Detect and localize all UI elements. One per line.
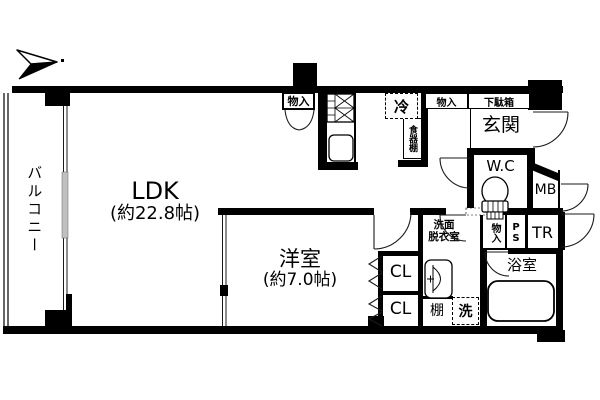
western-room-name: 洋室 <box>279 248 321 271</box>
storage-kitchen-label: 物入 <box>288 93 310 109</box>
storage-kitchen-box: 物入 <box>282 92 315 110</box>
cupboard-label: 食器棚 <box>406 125 419 152</box>
refrigerator-box: 冷 <box>385 93 418 119</box>
balcony-label: バルコニー <box>22 148 46 272</box>
shoe-cabinet-box: 下駄箱 <box>468 93 530 109</box>
western-room-window <box>220 215 228 326</box>
wall-westroom-top <box>218 208 374 215</box>
shelf-label: 棚 <box>421 299 453 325</box>
storage-hall-box: 物入 <box>425 93 468 109</box>
washroom-label-line2: 脱衣室 <box>428 232 460 244</box>
ldk-label: LDK (約22.8帖) <box>70 174 240 228</box>
wall-top-right-pillar <box>528 80 562 110</box>
wall-kitchen-bottom <box>398 160 428 167</box>
wall-balcony-divider-bar <box>66 294 72 326</box>
western-room-size: (約7.0帖) <box>263 271 337 290</box>
meter-box-door-arc <box>561 184 588 211</box>
cupboard-box: 食器棚 <box>403 118 422 159</box>
wall-balcony-divider-top <box>45 86 70 106</box>
western-room-door-arc <box>374 212 411 249</box>
washroom-label: 洗面 脱衣室 <box>421 215 467 249</box>
wall-entrance-side <box>528 148 535 164</box>
shoe-cabinet-label: 下駄箱 <box>484 94 514 109</box>
wall-bath-left <box>480 248 487 326</box>
ldk-size: (約22.8帖) <box>110 204 200 224</box>
western-room-label: 洋室 (約7.0帖) <box>235 245 365 293</box>
wall-mb-diagonal <box>529 161 558 181</box>
washbasin-icon <box>425 260 452 298</box>
wall-westroom-pillar <box>368 316 384 326</box>
wall-wc-left <box>467 148 474 215</box>
ldk-name: LDK <box>131 178 179 204</box>
wc-door-arc <box>440 158 470 188</box>
wall-trunk-right <box>558 212 565 250</box>
wall-counter-left <box>318 86 325 170</box>
wc-label: W.C <box>474 155 527 177</box>
refrigerator-label: 冷 <box>394 96 409 117</box>
storage-hall-label: 物入 <box>437 94 457 109</box>
pipe-space-label: PS <box>507 217 525 248</box>
meter-box-label: MB <box>532 179 559 203</box>
bathtub-icon <box>488 281 554 321</box>
storage-kitchen-door-arc <box>285 110 314 130</box>
entrance-door-arc <box>533 112 568 147</box>
entrance-label: 玄関 <box>472 109 530 141</box>
wall-bottom-right-pillar <box>537 330 565 342</box>
washer-box: 洗 <box>452 297 479 325</box>
bathroom-label: 浴室 <box>487 254 557 276</box>
wall-mid-left <box>420 208 446 215</box>
wall-entrance-bottom <box>467 148 533 155</box>
wall-bath-right <box>556 250 563 326</box>
closet-upper-label: CL <box>383 255 418 289</box>
wall-mid-right <box>468 208 563 215</box>
wall-westroom-top-right <box>410 208 422 215</box>
closet-lower-label: CL <box>383 294 418 325</box>
wall-bottom <box>3 326 563 334</box>
wall-top-pillar <box>293 63 317 87</box>
trunk-room-label: TR <box>527 216 558 249</box>
north-arrow-icon <box>17 50 64 79</box>
washer-label: 洗 <box>459 301 473 321</box>
line-entrance-step <box>470 103 471 148</box>
trunk-room-door-arc <box>561 214 594 247</box>
line-storage-bottom <box>481 248 508 250</box>
kitchen-counter <box>325 92 356 164</box>
balcony-window <box>62 106 68 310</box>
balcony-railing <box>4 93 8 333</box>
floor-plan: 物入 物入 下駄箱 食器棚 冷 洗 バルコニー LDK (約22.8帖) 洋室 … <box>0 0 600 400</box>
storage-washroom-label: 物入 <box>484 217 505 248</box>
line-storage-right <box>480 215 483 248</box>
